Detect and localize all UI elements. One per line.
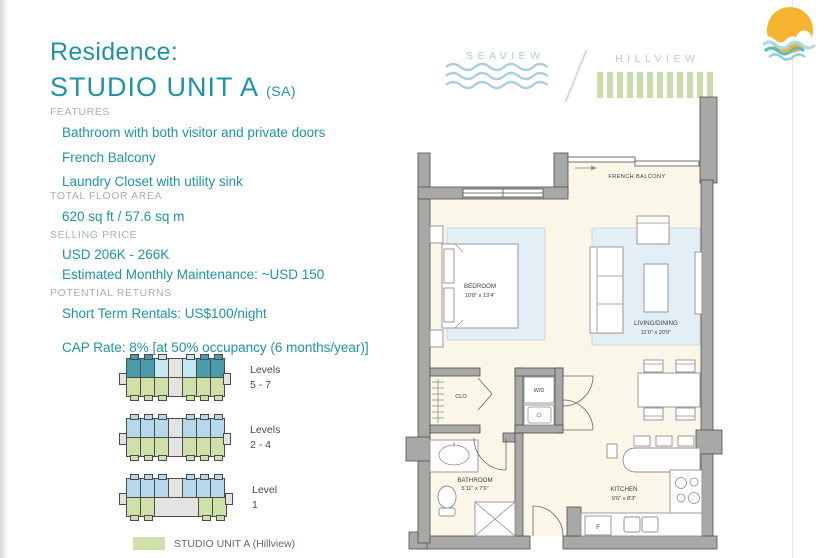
unit-cell-blue	[140, 418, 155, 438]
closet-label: CLO	[455, 394, 467, 400]
sun-waves-logo-icon	[763, 5, 820, 62]
building-diagrams: Levels5 - 7Levels2 - 4Level1	[126, 354, 280, 534]
brand-seaview: SEAVIEW	[443, 50, 563, 97]
dining-chair	[676, 360, 695, 372]
balcony-tab	[130, 354, 139, 360]
balcony-tab	[144, 455, 153, 461]
building-stub	[223, 373, 231, 385]
unit-cell-teal	[126, 358, 141, 378]
balcony-tab	[186, 354, 195, 360]
page-title-line1: Residence:	[50, 38, 400, 67]
dining-chair	[644, 408, 663, 420]
unit-title: STUDIO UNIT A	[50, 72, 258, 102]
maintenance-note: Estimated Monthly Maintenance: ~USD 150	[62, 265, 410, 285]
balcony-tab	[130, 395, 139, 401]
unit-cell-green	[198, 497, 213, 517]
balcony-tab	[216, 515, 225, 521]
page-edge-shadow	[0, 0, 8, 558]
cooktop-counter	[670, 470, 702, 515]
unit-cell-blue	[182, 478, 197, 498]
bathroom-label: BATHROOM	[457, 477, 492, 484]
kitchen-sink	[642, 517, 658, 532]
balcony-tab	[144, 414, 153, 420]
unit-cell-blue	[182, 418, 197, 438]
pillow	[444, 249, 454, 283]
selling-price-label: SELLING PRICE	[50, 229, 410, 241]
balcony-tab	[214, 395, 223, 401]
floor-area-section: TOTAL FLOOR AREA 620 sq ft / 57.6 sq m	[50, 190, 410, 227]
balcony-tab	[158, 414, 167, 420]
balcony-tab	[200, 474, 209, 480]
building-diagram: Levels2 - 4	[126, 414, 280, 461]
building-stub	[225, 493, 233, 505]
bathroom-dims: 5'11" x 7'6"	[461, 486, 488, 492]
building-level-label: Level1	[252, 483, 277, 512]
features-section: FEATURES Bathroom with both visitor and …	[50, 106, 410, 192]
nightstand	[430, 226, 443, 243]
unit-cell-teal	[140, 358, 155, 378]
unit-cell-lobby	[154, 497, 199, 517]
fridge-label: F	[596, 524, 600, 531]
unit-cell-core	[168, 437, 183, 457]
legend: STUDIO UNIT A (Hillview)	[133, 537, 295, 550]
unit-cell-blue	[154, 418, 169, 438]
building-stub	[223, 433, 231, 445]
unit-cell-core	[168, 478, 183, 498]
washer-label: W/D	[534, 388, 545, 394]
price-range: USD 206K - 266K	[62, 245, 410, 265]
french-balcony-label: FRENCH BALCONY	[608, 174, 665, 180]
rental-rate: Short Term Rentals: US$100/night	[62, 304, 410, 324]
floor-area-value: 620 sq ft / 57.6 sq m	[62, 207, 410, 227]
legend-swatch-green	[133, 537, 165, 550]
balcony-tab	[130, 455, 139, 461]
toilet	[438, 486, 456, 508]
balcony-tab	[158, 455, 167, 461]
balcony-tab	[214, 414, 223, 420]
unit-cell-green	[154, 377, 169, 397]
balcony-tab	[200, 354, 209, 360]
building-stub	[119, 433, 127, 445]
unit-cell-green	[196, 377, 211, 397]
balcony-tab	[158, 354, 167, 360]
bar-stool	[656, 436, 672, 446]
bar-stool	[678, 436, 694, 446]
unit-cell-green	[140, 497, 155, 517]
unit-cell-core	[168, 418, 183, 438]
dining-chair	[676, 408, 695, 420]
bedroom-dims: 10'8" x 13'4"	[465, 293, 496, 299]
unit-cell-green	[140, 377, 155, 397]
building-level-label: Levels2 - 4	[250, 423, 280, 452]
balcony-tab	[200, 455, 209, 461]
kitchen-peninsula	[623, 448, 700, 472]
coffee-table	[644, 264, 668, 312]
features-label: FEATURES	[50, 106, 410, 118]
brochure-page: { "theme": { "teal": "#1f93a3", "muted_l…	[0, 0, 828, 558]
balcony-tab	[130, 414, 139, 420]
unit-cell-green	[126, 497, 141, 517]
unit-cell-green	[126, 377, 141, 397]
unit-cell-green	[182, 437, 197, 457]
feature-item: Laundry Closet with utility sink	[62, 172, 410, 192]
hillview-label: HILLVIEW	[595, 53, 715, 65]
unit-cell-blue	[196, 478, 211, 498]
balcony-tab	[214, 474, 223, 480]
bedroom-window	[463, 189, 543, 197]
building-level-label: Levels5 - 7	[250, 363, 280, 392]
page-title-line2: STUDIO UNIT A (SA)	[50, 72, 400, 103]
nightstand	[430, 330, 443, 347]
bar-stool	[607, 444, 617, 458]
unit-cell-blue	[140, 478, 155, 498]
seaview-label: SEAVIEW	[443, 50, 563, 62]
floor-plan: FRENCH BALCONY BEDROOM 10'8" x 13'4"	[405, 92, 725, 558]
unit-cell-cyan	[154, 358, 169, 378]
unit-cell-green	[154, 437, 169, 457]
balcony-tab	[158, 395, 167, 401]
balcony-tab	[130, 474, 139, 480]
returns-section: POTENTIAL RETURNS Short Term Rentals: US…	[50, 287, 410, 357]
tv-console	[695, 252, 702, 314]
floor-area-label: TOTAL FLOOR AREA	[50, 190, 410, 202]
balcony-tab	[158, 474, 167, 480]
dining-table	[638, 373, 700, 407]
bedroom: BEDROOM 10'8" x 13'4"	[430, 226, 545, 347]
balcony-tab	[214, 354, 223, 360]
balcony-tab	[202, 515, 211, 521]
balcony-tab	[200, 395, 209, 401]
pillow	[444, 288, 454, 322]
unit-cell-core	[168, 358, 183, 378]
unit-cell-core	[168, 377, 183, 397]
bar-stool	[634, 436, 650, 446]
unit-cell-teal	[196, 358, 211, 378]
sofa	[590, 247, 623, 333]
balcony-tab	[186, 474, 195, 480]
feature-item: French Balcony	[62, 148, 410, 168]
balcony-tab	[144, 474, 153, 480]
unit-cell-green	[140, 437, 155, 457]
balcony-tab	[144, 354, 153, 360]
unit-code: (SA)	[266, 83, 296, 99]
feature-item: Bathroom with both visitor and private d…	[62, 123, 410, 143]
bedroom-label: BEDROOM	[464, 283, 496, 290]
unit-cell-green	[126, 437, 141, 457]
kitchen-sink	[624, 517, 640, 532]
balcony-tab	[200, 414, 209, 420]
unit-cell-cyan	[182, 358, 197, 378]
unit-cell-blue	[126, 418, 141, 438]
living-dining: LIVING/DINING 11'0" x 20'9"	[590, 216, 702, 345]
balcony-tab	[186, 395, 195, 401]
balcony-tab	[214, 455, 223, 461]
living-dims: 11'0" x 20'9"	[641, 330, 671, 336]
building-diagram: Levels5 - 7	[126, 354, 280, 401]
unit-cell-green	[196, 437, 211, 457]
armchair	[637, 216, 669, 244]
unit-cell-blue	[196, 418, 211, 438]
balcony-tab	[186, 455, 195, 461]
unit-cell-green	[182, 377, 197, 397]
kitchen-dims: 9'6" x 8'3"	[612, 496, 636, 502]
building-diagram: Level1	[126, 474, 280, 521]
waves-icon	[444, 62, 562, 92]
balcony-tab	[186, 414, 195, 420]
page-edge-line	[792, 0, 793, 558]
building-stub	[119, 493, 127, 505]
kitchen-label: KITCHEN	[610, 486, 637, 493]
unit-cell-blue	[210, 478, 225, 498]
living-label: LIVING/DINING	[634, 320, 678, 327]
selling-price-section: SELLING PRICE USD 206K - 266K Estimated …	[50, 229, 410, 284]
returns-label: POTENTIAL RETURNS	[50, 287, 410, 299]
balcony-tab	[144, 395, 153, 401]
building-stub	[119, 373, 127, 385]
legend-label: STUDIO UNIT A (Hillview)	[174, 538, 295, 550]
balcony-tab	[144, 515, 153, 521]
info-panel: Residence: STUDIO UNIT A (SA)	[50, 38, 400, 103]
unit-cell-blue	[154, 478, 169, 498]
balcony-tab	[130, 515, 139, 521]
unit-cell-blue	[126, 478, 141, 498]
dining-chair	[644, 360, 663, 372]
